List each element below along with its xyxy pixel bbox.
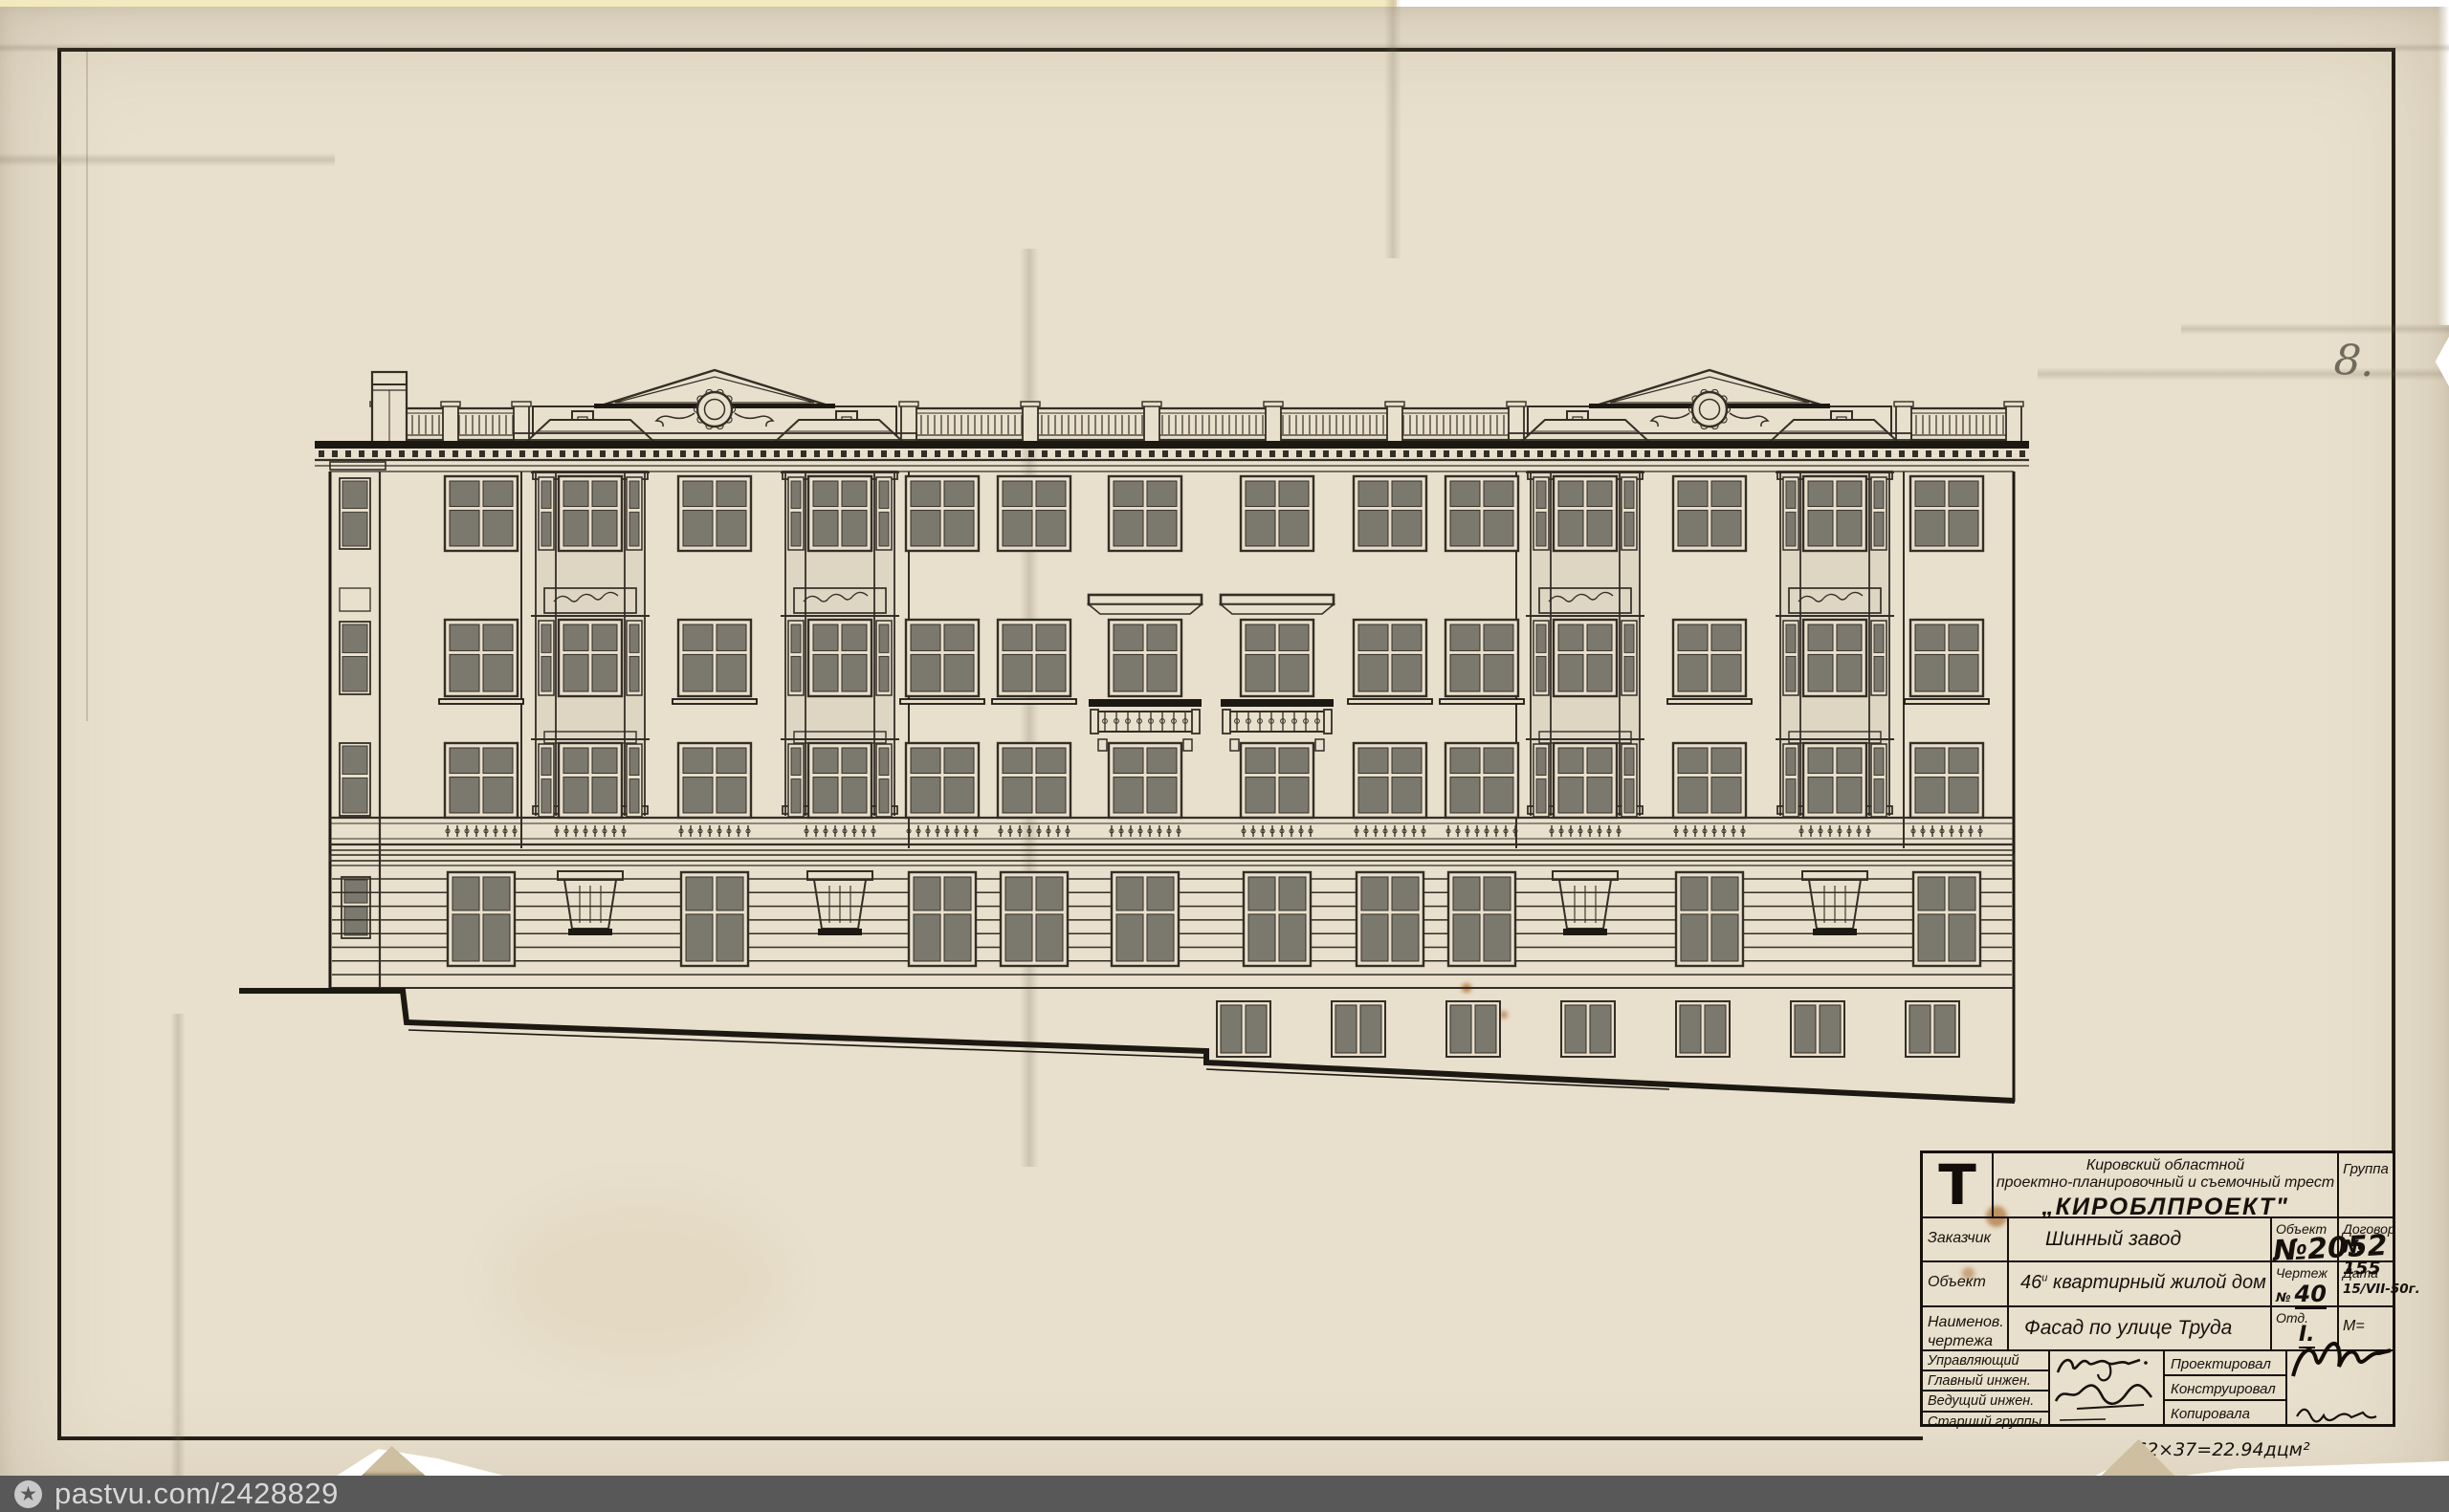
sign-label-designed: Проектировал (2165, 1351, 2285, 1374)
fold-crease (0, 153, 335, 166)
signature-right-cell (2285, 1351, 2393, 1424)
trust-name: „КИРОБЛПРОЕКТ" (1994, 1192, 2337, 1221)
fold-crease (2181, 323, 2449, 335)
sign-label-manager: Управляющий (1923, 1351, 2048, 1370)
signature-block: Управляющий Главный инжен. Ведущий инжен… (1923, 1349, 2393, 1424)
sign-label-chief-engineer: Главный инжен. (1923, 1370, 2048, 1390)
signature-left-cell (2048, 1351, 2163, 1424)
watermark-bar: ★ pastvu.com/2428829 (0, 1476, 2449, 1512)
group-cell: Группа (2337, 1153, 2393, 1216)
sign-label-engineered: Конструировал (2165, 1374, 2285, 1399)
signature-right-labels: Проектировал Конструировал Копировала (2163, 1351, 2285, 1424)
date-label: Дата (2343, 1265, 2378, 1281)
date-value: 15/VII-50г. (2343, 1282, 2420, 1297)
contract-cell: Договор № 155 (2337, 1218, 2393, 1260)
drawing-no-label: Чертеж (2276, 1265, 2328, 1281)
sheet-number-note: 8. (2332, 336, 2375, 387)
drawing-name-value: Фасад по улице Труда (2007, 1307, 2270, 1349)
customer-label: Заказчик (1923, 1218, 2007, 1260)
sign-label-lead-engineer: Ведущий инжен. (1923, 1390, 2048, 1410)
fold-crease (1384, 0, 1401, 258)
drawing-no-cell: Чертеж № 40 (2270, 1262, 2337, 1305)
paper-top-shadow (0, 43, 2449, 53)
trust-logo: Т (1923, 1153, 1992, 1216)
title-block: Т Кировский областной проектно-планирово… (1920, 1150, 2395, 1427)
sign-label-copied: Копировала (2165, 1399, 2285, 1424)
pencil-margin-line (86, 52, 88, 721)
customer-row: Заказчик Шинный завод Объект №2052 Догов… (1923, 1216, 2393, 1260)
signature-copyist (2293, 1401, 2393, 1426)
star-in-circle-icon: ★ (14, 1480, 42, 1508)
fold-crease (2038, 367, 2449, 381)
sign-label-group-senior: Старший группы (1923, 1411, 2048, 1431)
frame-bottom-line (57, 1436, 1923, 1440)
drawing-no-value: 40 (2295, 1281, 2327, 1309)
watermark-url: pastvu.com/2428829 (55, 1477, 339, 1511)
object-value: 46и квартирный жилой дом (2007, 1262, 2270, 1305)
org-name-cell: Кировский областной проектно-планировочн… (1992, 1153, 2337, 1216)
object-label: Объект (1923, 1262, 2007, 1305)
date-cell: Дата 15/VII-50г. (2337, 1262, 2393, 1305)
scanned-drawing-sheet: 8. Т Кировский областной проектно-планир… (0, 0, 2449, 1512)
discoloration (497, 1195, 784, 1368)
org-line1: Кировский областной (1994, 1157, 2337, 1174)
customer-value: Шинный завод (2007, 1218, 2270, 1260)
scale-label: М= (2343, 1310, 2365, 1335)
sheet-area-note: 62×37=22.94дцм² (2135, 1439, 2310, 1460)
fold-crease (170, 1014, 186, 1478)
object-row: Объект 46и квартирный жилой дом Чертеж №… (1923, 1260, 2393, 1305)
object-no-cell: Объект №2052 (2270, 1218, 2337, 1260)
frame-left-line (57, 48, 61, 1440)
facade-elevation-drawing (234, 359, 2062, 1124)
signature-manager (2052, 1351, 2163, 1426)
contract-label: Договор (2343, 1221, 2395, 1237)
signature-left-labels: Управляющий Главный инжен. Ведущий инжен… (1923, 1351, 2048, 1424)
title-block-header-row: Т Кировский областной проектно-планирово… (1923, 1153, 2393, 1216)
drawing-name-label: Наименов. чертежа (1923, 1307, 2007, 1349)
org-line2: проектно-планировочный и съемочный трест (1994, 1174, 2337, 1192)
frame-right-line (2392, 48, 2395, 1151)
